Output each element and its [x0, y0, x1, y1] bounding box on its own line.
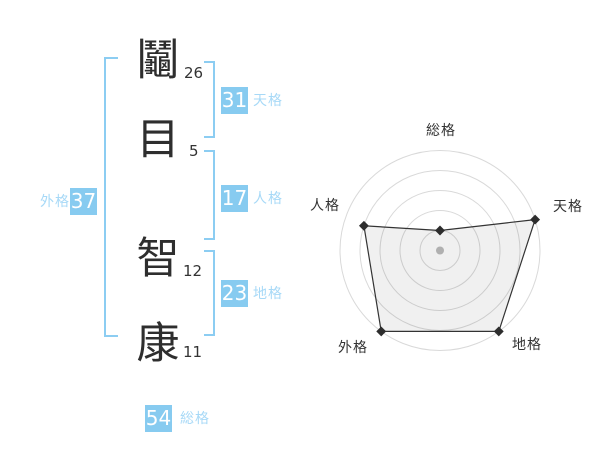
stroke-count-4: 11 — [183, 345, 202, 360]
bracket-chikaku — [204, 250, 215, 336]
name-char-1: 鬮 — [134, 38, 182, 84]
radar-axis-label-1: 天格 — [553, 199, 583, 215]
name-char-2: 目 — [134, 117, 182, 163]
radar-chart: 総格天格地格外格人格 — [310, 110, 590, 370]
tenkaku-score-box: 31 — [221, 87, 248, 114]
soukaku-label: 総格 — [180, 412, 210, 427]
chikaku-label: 地格 — [253, 287, 283, 302]
tenkaku-label: 天格 — [253, 94, 283, 109]
jinkaku-score-box: 17 — [221, 185, 248, 212]
bracket-gaikaku — [104, 57, 118, 337]
radar-axis-label-3: 外格 — [338, 340, 368, 356]
name-char-4: 康 — [134, 321, 182, 367]
chikaku-score-box: 23 — [221, 280, 248, 307]
stroke-count-2: 5 — [189, 144, 199, 159]
jinkaku-label: 人格 — [253, 192, 283, 207]
radar-axis-label-2: 地格 — [512, 337, 542, 353]
radar-axis-label-4: 人格 — [310, 198, 340, 214]
bracket-jinkaku — [204, 150, 215, 240]
radar-data-polygon — [364, 220, 535, 332]
soukaku-score-box: 54 — [145, 405, 172, 432]
gaikaku-label: 外格 — [40, 195, 70, 210]
bracket-tenkaku — [204, 61, 215, 138]
gaikaku-score-box: 37 — [70, 188, 97, 215]
name-char-3: 智 — [134, 236, 182, 282]
name-fortune-page: { "name": { "characters": [ {"char": "鬮"… — [0, 0, 600, 470]
radar-axis-label-0: 総格 — [426, 123, 456, 139]
stroke-count-3: 12 — [183, 264, 202, 279]
stroke-count-1: 26 — [184, 66, 203, 81]
